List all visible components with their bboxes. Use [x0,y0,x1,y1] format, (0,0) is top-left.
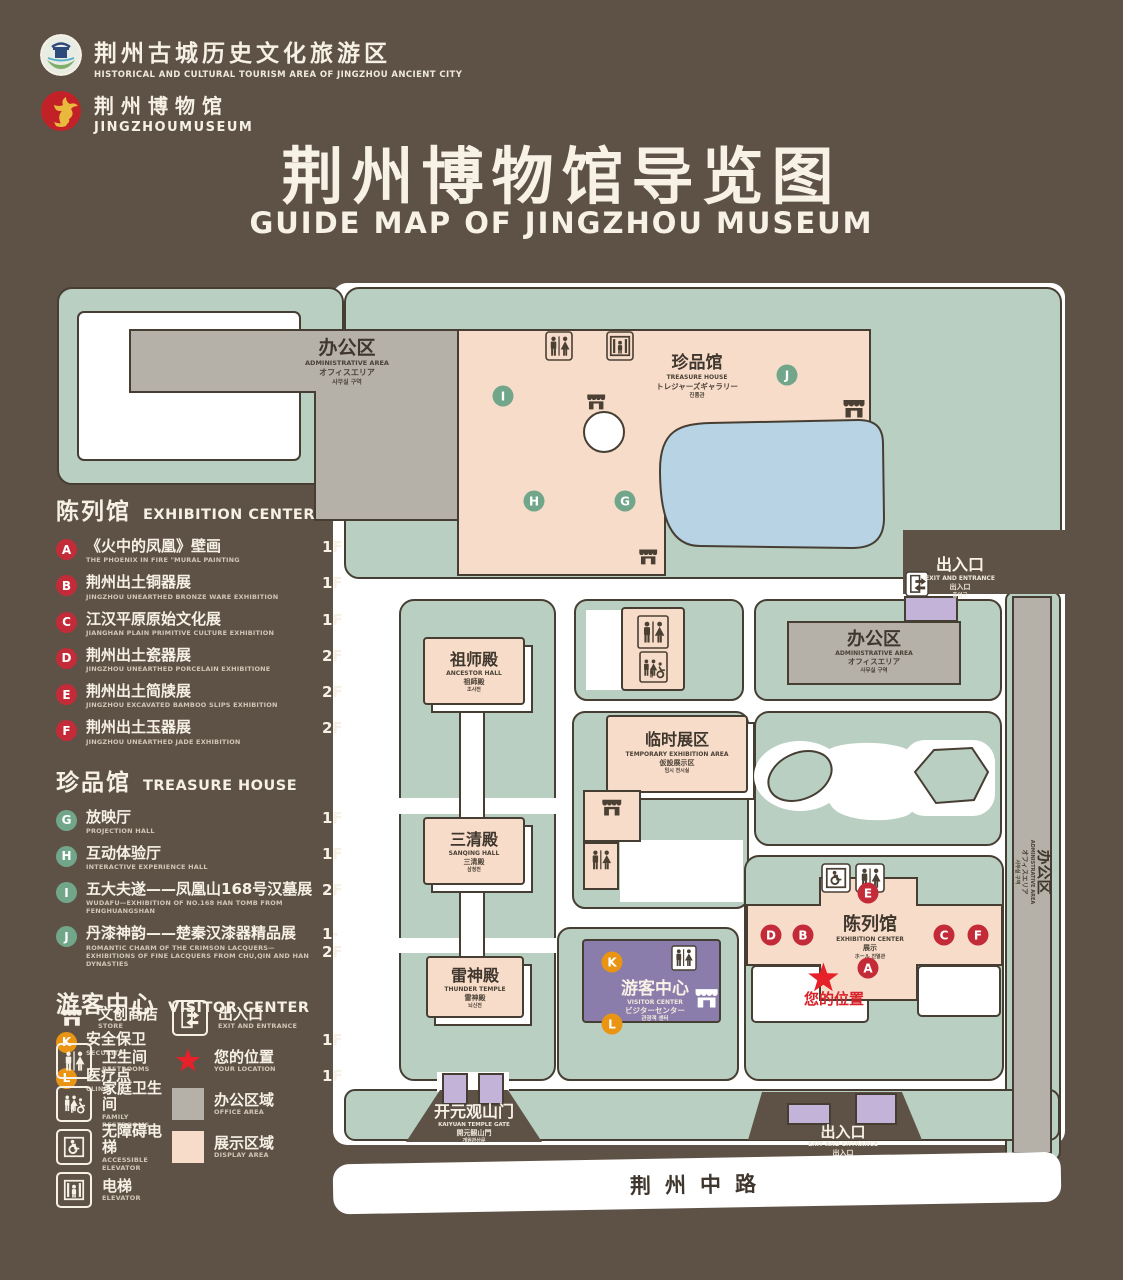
restroom-icon [672,946,696,970]
museum-logo-zh: 荆州博物馆 [94,90,253,119]
item-floor: 2F [322,719,358,737]
item-en: ROMANTIC CHARM OF THE CRIMSON LACQUERS—E… [86,944,320,968]
svg-text:J: J [784,369,789,383]
marker-F: F [968,925,989,946]
gate-ja: 開元観山門 [457,1128,492,1137]
item-zh: 《火中的凤凰》壁画 [86,538,320,555]
admin-east-ko: 사무실 구역 [1014,860,1021,885]
item-floor: 1F [322,809,358,827]
item-en: JINGZHOU UNEARTHED JADE EXHIBITION [86,738,320,746]
legend-item-j: J 丹漆神韵——楚秦汉漆器精品展ROMANTIC CHARM OF THE CR… [56,925,358,967]
admin-right-ko: 사무실 구역 [860,666,887,674]
item-zh: 荆州出土瓷器展 [86,647,320,664]
badge-d: D [56,648,77,669]
legend-item-d: D 荆州出土瓷器展JINGZHOU UNEARTHED PORCELAIN EX… [56,647,358,673]
guide-map-poster: 办公区 ADMINISTRATIVE AREA オフィスエリア 사무실 구역 珍… [0,0,1123,1280]
svg-text:K: K [607,956,617,970]
legend-accessible-elevator: 无障碍电梯ACCESSIBLE ELEVATOR [56,1131,176,1163]
item-floor: 2F [322,881,358,899]
badge-c: C [56,612,77,633]
treasure-ja: トレジャーズギャラリー [656,381,738,391]
round-doorway [584,412,624,452]
svg-text:I: I [501,390,505,404]
item-en: JINGZHOU EXCAVATED BAMBOO SLIPS EXHIBITI… [86,701,320,709]
item-en: JINGZHOU UNEARTHED PORCELAIN EXHIBITIONE [86,665,320,673]
item-zh: 五大夫遂——凤凰山168号汉墓展 [86,881,320,898]
item-zh: 丹漆神韵——楚秦汉漆器精品展 [86,925,320,942]
tourism-area-logo-icon [40,34,82,76]
page-title-en: GUIDE MAP OF JINGZHOU MUSEUM [0,206,1123,240]
item-zh: 荆州出土铜器展 [86,574,320,591]
store-building [584,791,640,841]
section-title-en: TREASURE HOUSE [143,778,297,794]
display-area-swatch [172,1131,204,1163]
admin-east-zh: 办公区 [1035,849,1053,894]
admin-east-ja: オフィスエリア [1021,849,1029,895]
gate-en: KAIYUAN TEMPLE GATE [438,1122,510,1128]
treasure-ko: 진품관 [689,391,704,399]
visitor-ja: ビジターセンター [625,1005,685,1015]
marker-H: H [524,491,545,512]
legend-restrooms: 卫生间RESTROOMS [56,1045,176,1077]
item-floor: 2F [322,683,358,701]
badge-f: F [56,720,77,741]
exhibition-en: EXHIBITION CENTER [836,936,904,943]
sanqing-zh: 三清殿 [450,830,499,849]
item-zh: 放映厅 [86,809,320,826]
badge-e: E [56,684,77,705]
legend-item-h: H 互动体验厅INTERACTIVE EXPERIENCE HALL 1F [56,845,358,871]
thunder-ja: 雷神殿 [465,993,487,1002]
exit-bottom-gate [856,1094,896,1124]
sanqing-ja: 三清殿 [464,857,486,866]
item-floor: 1F [322,611,358,629]
legend-family-restrooms: 家庭卫生间FAMILY RESTROOMS [56,1088,176,1120]
ancestor-ja: 祖師殿 [463,677,486,686]
exit-bottom-en: EXIT AND ENTRANCE [808,1141,878,1148]
legend-item-c: C 江汉平原原始文化展JIANGHAN PLAIN PRIMITIVE CULT… [56,611,358,637]
ancestor-zh: 祖师殿 [449,650,499,669]
marker-G: G [615,491,636,512]
thunder-en: THUNDER TEMPLE [444,986,505,993]
legend-item-a: A 《火中的凤凰》壁画THE PHOENIX IN FIRE "MURAL PA… [56,538,358,564]
item-en: PROJECTION HALL [86,827,320,835]
exit-bottom-gate [788,1104,830,1124]
item-zh: 互动体验厅 [86,845,320,862]
courtyard [620,840,743,902]
admin-top-ja: オフィスエリア [319,368,375,377]
store-icon [56,1002,88,1034]
section-title-en: EXHIBITION CENTER [143,507,315,523]
corridor [460,884,484,960]
legend-item-b: B 荆州出土铜器展JINGZHOU UNEARTHED BRONZE WARE … [56,574,358,600]
item-floor: 1F [322,574,358,592]
marker-B: B [793,925,814,946]
page-title-zh: 荆州博物馆导览图 [0,126,1123,216]
marker-I: I [493,386,514,407]
admin-top-zh: 办公区 [318,336,375,359]
ancestor-ko: 조사전 [467,686,481,693]
elevator-icon [607,332,633,360]
item-en: WUDAFU—EXHIBITION OF NO.168 HAN TOMB FRO… [86,899,320,915]
exit-top-ko: 출입구 [952,591,967,599]
courtyard [918,966,1000,1016]
gate-zh: 开元观山门 [434,1102,514,1121]
gate-post [479,1074,503,1104]
accessible-elevator-icon [56,1129,92,1165]
legend-store: 文创商店STORE [56,1002,176,1034]
marker-C: C [934,925,955,946]
svg-text:L: L [608,1018,616,1032]
marker-L: L [602,1014,623,1035]
family-restroom-icon [56,1086,92,1122]
elevator-icon [56,1172,92,1208]
visitor-en: VISITOR CENTER [627,999,683,1006]
exit-icon [172,1000,208,1036]
legend-section-exhibition-center: 陈列馆 EXHIBITION CENTER [56,492,358,526]
exit-bottom-zh: 出入口 [820,1123,865,1141]
badge-a: A [56,539,77,560]
exit-top-zh: 出入口 [936,555,984,574]
road: 荆州中路 [333,1152,1062,1215]
pond [660,420,884,548]
item-en: JINGZHOU UNEARTHED BRONZE WARE EXHIBITIO… [86,593,320,601]
visitor-ko: 관광객 센터 [641,1014,668,1022]
temporary-en: TEMPORARY EXHIBITION AREA [626,751,729,758]
svg-text:D: D [766,929,776,943]
restroom-icon [56,1043,92,1079]
exhibition-ja: 展示 [862,943,877,952]
svg-text:E: E [864,887,872,901]
item-floor: 1-2F [322,925,358,961]
tourism-area-logo: 荆州古城历史文化旅游区 HISTORICAL AND CULTURAL TOUR… [40,34,462,80]
thunder-ko: 뇌신전 [468,1002,482,1009]
legend-section-treasure-house: 珍品馆 TREASURE HOUSE [56,763,358,797]
legend-item-i: I 五大夫遂——凤凰山168号汉墓展WUDAFU—EXHIBITION OF N… [56,881,358,915]
item-en: INTERACTIVE EXPERIENCE HALL [86,863,320,871]
badge-i: I [56,882,77,903]
admin-top-en: ADMINISTRATIVE AREA [305,359,389,367]
corridor [460,704,484,820]
svg-text:G: G [620,495,630,509]
exit-top-en: EXIT AND ENTRANCE [925,575,995,582]
office-area-swatch [172,1088,204,1120]
svg-text:F: F [974,929,982,943]
tourism-area-logo-en: HISTORICAL AND CULTURAL TOURISM AREA OF … [94,70,462,80]
item-zh: 荆州出土简牍展 [86,683,320,700]
legend-exit: 出入口EXIT AND ENTRANCE [172,1002,332,1034]
temporary-ja: 仮設展示区 [659,758,695,767]
item-en: JIANGHAN PLAIN PRIMITIVE CULTURE EXHIBIT… [86,629,320,637]
legend-display-area: 展示区域DISPLAY AREA [172,1131,332,1163]
treasure-en: TREASURE HOUSE [667,374,728,381]
marker-K: K [602,952,623,973]
legend-item-e: E 荆州出土简牍展JINGZHOU EXCAVATED BAMBOO SLIPS… [56,683,358,709]
thunder-zh: 雷神殿 [451,966,500,985]
gate-post [443,1074,467,1104]
ancestor-en: ANCESTOR HALL [446,670,502,677]
exhibition-zh: 陈列馆 [843,913,897,935]
marker-E: E [858,883,879,904]
icon-legend-left: 文创商店STORE 卫生间RESTROOMS 家庭卫生间FAMILY RESTR… [56,1002,176,1217]
item-floor: 1F [322,538,358,556]
location-star-icon [172,1045,204,1077]
your-location-label: 您的位置 [803,990,864,1008]
icon-legend-right: 出入口EXIT AND ENTRANCE 您的位置YOUR LOCATION 办… [172,1002,332,1174]
badge-b: B [56,575,77,596]
temporary-zh: 临时展区 [645,730,709,749]
marker-J: J [777,365,798,386]
item-zh: 荆州出土玉器展 [86,719,320,736]
marker-D: D [761,925,782,946]
tourism-area-logo-zh: 荆州古城历史文化旅游区 [94,34,462,68]
courtyard [586,610,626,690]
svg-text:H: H [529,495,539,509]
visitor-zh: 游客中心 [621,978,689,999]
sanqing-ko: 삼청전 [467,866,481,873]
legend-elevator: 电梯ELEVATOR [56,1174,176,1206]
legend-your-location: 您的位置YOUR LOCATION [172,1045,332,1077]
section-title-zh: 陈列馆 [56,492,131,526]
restroom-building [622,608,684,690]
accessible-elevator-icon [822,864,850,892]
marker-A: A [858,958,879,979]
badge-j: J [56,926,77,947]
item-floor: 1F [322,845,358,863]
admin-right-ja: オフィスエリア [848,657,901,666]
exit-top-gate [905,597,957,621]
admin-right-zh: 办公区 [847,628,901,650]
badge-h: H [56,846,77,867]
section-title-zh: 珍品馆 [56,763,131,797]
badge-g: G [56,810,77,831]
legend-item-g: G 放映厅PROJECTION HALL 1F [56,809,358,835]
treasure-zh: 珍品馆 [672,352,723,373]
admin-top-ko: 사무실 구역 [332,378,362,386]
item-floor: 2F [322,647,358,665]
item-en: THE PHOENIX IN FIRE "MURAL PAINTING [86,556,320,564]
gate-ko: 개원관산문 [462,1137,485,1144]
exit-top-ja: 出入口 [950,582,971,591]
temporary-ko: 임시 전시실 [665,767,690,774]
svg-text:B: B [798,929,807,943]
sanqing-en: SANQING HALL [449,850,500,857]
svg-text:A: A [863,962,873,976]
road-label: 荆州中路 [630,1172,770,1198]
admin-right-en: ADMINISTRATIVE AREA [835,650,913,657]
legend-office-area: 办公区域OFFICE AREA [172,1088,332,1120]
item-zh: 江汉平原原始文化展 [86,611,320,628]
legend-item-f: F 荆州出土玉器展JINGZHOU UNEARTHED JADE EXHIBIT… [56,719,358,745]
svg-text:C: C [940,929,949,943]
